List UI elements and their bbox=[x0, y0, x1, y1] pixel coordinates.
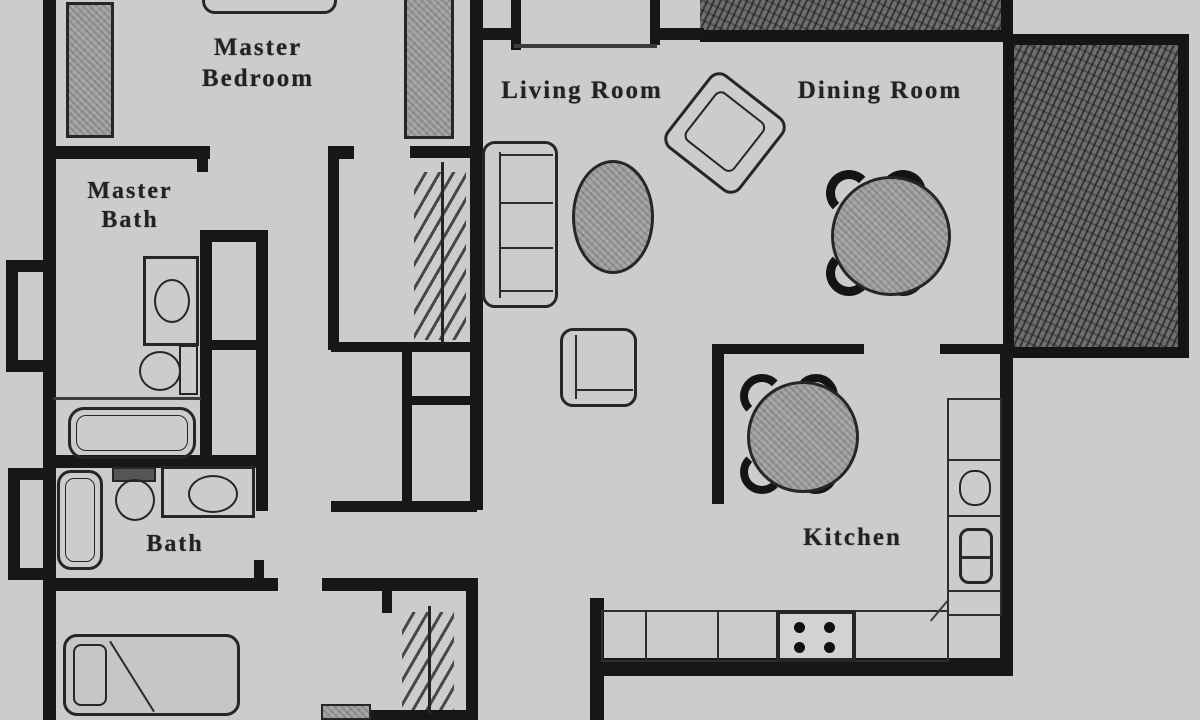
bathtub2-icon bbox=[57, 470, 103, 570]
room-label-master-bath: Master Bath bbox=[50, 177, 210, 236]
wall-bath-stub bbox=[254, 560, 264, 580]
burner-icon bbox=[794, 642, 805, 653]
dresser-left-icon bbox=[66, 2, 114, 138]
bathtub-inner bbox=[76, 415, 188, 451]
hatched-patio-block bbox=[1003, 34, 1189, 358]
master-bed-foot-icon bbox=[202, 0, 337, 14]
kitchen-counter-column bbox=[947, 398, 1002, 616]
wall-closet-divider-h bbox=[410, 396, 472, 405]
bathtub2-inner bbox=[65, 478, 95, 562]
stove-icon bbox=[776, 610, 856, 662]
wall-bath-right bbox=[256, 455, 268, 511]
end-table-icon bbox=[560, 328, 637, 407]
sink-oval-icon bbox=[959, 470, 991, 506]
toilet-bowl-icon bbox=[139, 351, 181, 391]
sofa-icon bbox=[482, 141, 558, 308]
dining-table-icon bbox=[831, 176, 951, 296]
bed-icon bbox=[63, 634, 240, 716]
sofa-cushion-line bbox=[499, 154, 553, 156]
sofa-back-line bbox=[499, 152, 501, 298]
closet2-rod-icon bbox=[428, 606, 431, 714]
bathtub-icon bbox=[68, 407, 196, 459]
closet-rod-icon bbox=[441, 162, 444, 344]
counter-divider bbox=[645, 612, 647, 660]
wall-entry-jamb-right bbox=[650, 0, 660, 45]
sink-icon bbox=[154, 279, 190, 323]
sofa-cushion-line bbox=[499, 247, 553, 249]
pillow-icon bbox=[73, 644, 107, 706]
sofa-cushion-line bbox=[499, 290, 553, 292]
closet-rod-hangers-icon bbox=[414, 172, 466, 340]
dresser2-icon bbox=[321, 704, 371, 720]
vanity2-icon bbox=[161, 466, 255, 518]
hatched-balcony-strip bbox=[700, 0, 1013, 42]
wall-bay1-left bbox=[6, 260, 18, 372]
sink2-icon bbox=[188, 475, 238, 513]
wall-bedroom2-closet-right bbox=[466, 585, 478, 720]
wall-master-bedroom-south bbox=[50, 146, 210, 159]
sofa-cushion-line bbox=[499, 202, 553, 204]
bed-fold-line bbox=[109, 641, 155, 712]
double-sink-divider bbox=[962, 556, 990, 559]
room-label-dining-room: Dining Room bbox=[755, 76, 1005, 107]
wall-bedroom2-closet-stub bbox=[382, 591, 392, 613]
counter-divider bbox=[949, 459, 1000, 461]
room-label-living-room: Living Room bbox=[462, 76, 702, 107]
double-sink-icon bbox=[959, 528, 993, 584]
wall-closet-bottom bbox=[331, 501, 477, 512]
wall-bay2-bottom bbox=[8, 568, 48, 580]
burner-icon bbox=[824, 622, 835, 633]
counter-divider bbox=[717, 612, 719, 660]
tub-alcove-line bbox=[53, 397, 201, 400]
wall-closet-divider-v bbox=[402, 347, 412, 507]
toilet2-bowl-icon bbox=[115, 479, 155, 521]
wall-entry-jamb-left bbox=[511, 0, 521, 50]
wall-hall-closet-left bbox=[328, 146, 339, 350]
floor-plan: Master Bedroom Master Bath Bath Living R… bbox=[0, 0, 1200, 720]
wall-door-stub bbox=[197, 146, 208, 172]
dresser-right-icon bbox=[404, 0, 454, 139]
burner-icon bbox=[794, 622, 805, 633]
counter-divider bbox=[949, 515, 1000, 517]
toilet-tank-icon bbox=[179, 345, 198, 395]
room-label-master-bedroom: Master Bedroom bbox=[168, 33, 348, 94]
vanity-icon bbox=[143, 256, 199, 346]
wall-bay1-bottom bbox=[6, 360, 48, 372]
kitchen-table-icon bbox=[747, 381, 859, 493]
wall-hall-closet-top bbox=[410, 146, 472, 158]
wall-linen-divider bbox=[200, 340, 268, 350]
wall-kitchen-west bbox=[712, 344, 724, 504]
wall-kitchen-north-right bbox=[940, 344, 1013, 354]
coffee-table-icon bbox=[572, 160, 654, 274]
burner-icon bbox=[824, 642, 835, 653]
kitchen-counter-band bbox=[601, 610, 949, 662]
entry-threshold-line bbox=[514, 44, 657, 48]
wall-bath-south bbox=[43, 578, 278, 591]
wall-bedroom2-closet-bottom bbox=[370, 710, 478, 720]
wall-kitchen-north-left bbox=[712, 344, 864, 354]
wall-bedroom2-closet-top bbox=[322, 578, 478, 591]
end-table-line bbox=[575, 389, 633, 391]
room-label-bath: Bath bbox=[115, 530, 235, 559]
wall-bay2-left bbox=[8, 468, 20, 580]
room-label-kitchen: Kitchen bbox=[770, 523, 935, 554]
counter-divider bbox=[949, 590, 1000, 592]
